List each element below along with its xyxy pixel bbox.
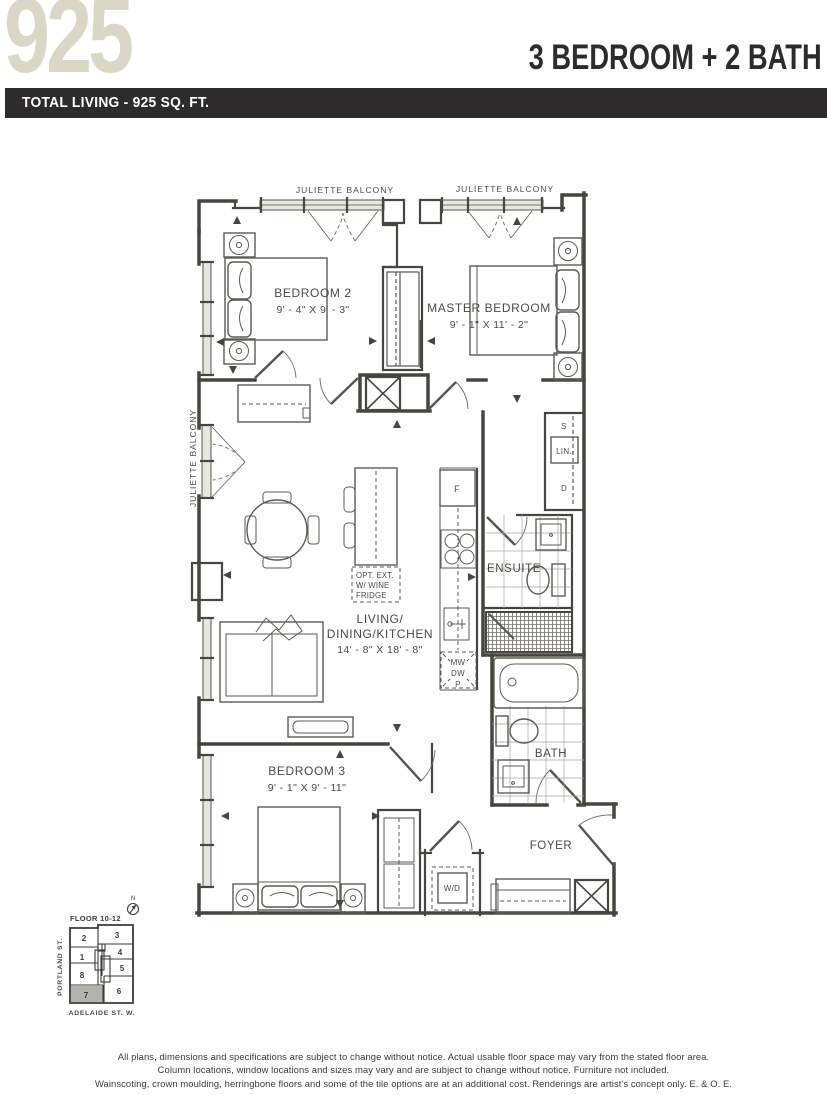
- disclaimer-line-3: Wainscoting, crown moulding, herringbone…: [0, 1077, 827, 1090]
- keyplan-unit-7: 7: [84, 991, 89, 1000]
- drawers-label: D: [561, 484, 567, 493]
- disclaimer: All plans, dimensions and specifications…: [0, 1050, 827, 1090]
- keyplan-unit-5: 5: [120, 964, 125, 973]
- bedroom3-label: BEDROOM 3: [268, 764, 345, 778]
- master-bedroom-label: MASTER BEDROOM: [427, 301, 551, 315]
- living-label-line1: LIVING/: [357, 612, 404, 626]
- foyer-label: FOYER: [530, 840, 573, 852]
- disclaimer-line-1: All plans, dimensions and specifications…: [0, 1050, 827, 1063]
- furniture-bedroom3: [233, 807, 420, 913]
- pantry-label: P: [455, 680, 461, 689]
- bedroom3-dims: 9' - 1" X 9' - 11": [268, 782, 347, 794]
- keyplan-unit-6: 6: [117, 987, 122, 996]
- living-label-line2: DINING/KITCHEN: [327, 627, 433, 641]
- keyplan-north-label: N: [131, 896, 135, 902]
- microwave-label: MW: [451, 658, 466, 667]
- living-dims: 14' - 8" X 18' - 8": [337, 644, 423, 656]
- opt-ext-line2: W/ WINE: [356, 581, 389, 590]
- keyplan-unit-1: 1: [80, 953, 85, 962]
- floor-plan-svg: JULIETTE BALCONY JULIETTE BALCONY JULIET…: [0, 0, 827, 1095]
- shelf-label: S: [561, 422, 567, 431]
- linen-label: LIN.: [556, 447, 572, 456]
- shower: [486, 612, 572, 652]
- juliette-balcony-label-1: JULIETTE BALCONY: [296, 185, 394, 195]
- keyplan-unit-2: 2: [82, 934, 87, 943]
- keyplan: FLOOR 10-12 N 2 3 1 4 8 5 7 6 PORTLAND S…: [57, 896, 139, 1017]
- keyplan-unit-4: 4: [118, 948, 123, 957]
- fridge-label: F: [454, 484, 460, 494]
- washer-dryer-label: W/D: [444, 884, 460, 893]
- keyplan-street-bottom: ADELAIDE ST. W.: [69, 1010, 136, 1017]
- bedroom2-label: BEDROOM 2: [274, 286, 351, 300]
- furniture-living: [220, 492, 353, 737]
- keyplan-unit-3: 3: [115, 931, 120, 940]
- keyplan-floor-label: FLOOR 10-12: [70, 914, 121, 923]
- furniture-bedroom2: [224, 233, 327, 422]
- dishwasher-label: DW: [451, 669, 465, 678]
- juliette-balcony-label-left: JULIETTE BALCONY: [188, 409, 198, 507]
- keyplan-street-left: PORTLAND ST.: [57, 938, 64, 996]
- opt-ext-line1: OPT. EXT.: [356, 571, 394, 580]
- bath-label: BATH: [535, 748, 567, 760]
- keyplan-unit-8: 8: [80, 971, 85, 980]
- disclaimer-line-2: Column locations, window locations and s…: [0, 1063, 827, 1076]
- bedroom2-dims: 9' - 4" X 9' - 3": [276, 304, 349, 316]
- juliette-balcony-label-2: JULIETTE BALCONY: [456, 184, 554, 194]
- exterior-walls: [192, 193, 616, 915]
- master-bedroom-dims: 9' - 1" X 11' - 2": [450, 319, 529, 331]
- ensuite-label: ENSUITE: [487, 563, 541, 575]
- opt-ext-line3: FRIDGE: [356, 591, 387, 600]
